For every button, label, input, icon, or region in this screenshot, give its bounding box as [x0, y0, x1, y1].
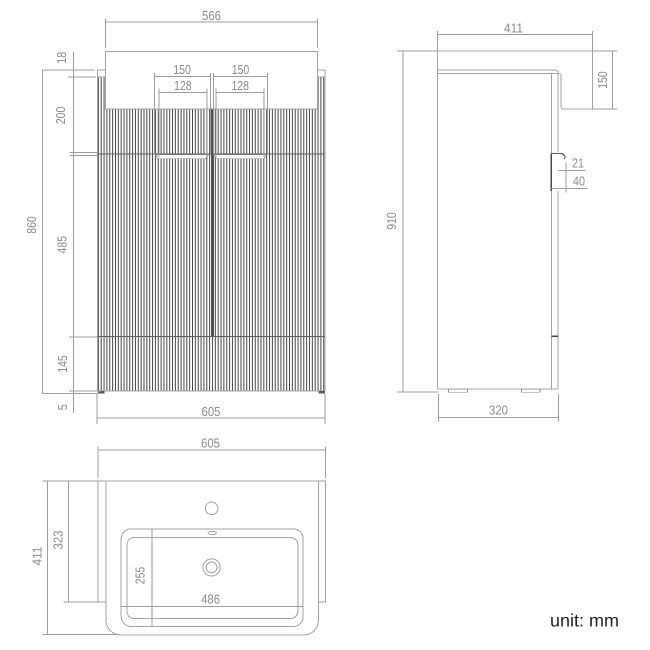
svg-text:605: 605 — [201, 436, 220, 451]
svg-text:323: 323 — [50, 531, 65, 550]
svg-text:910: 910 — [384, 212, 399, 230]
svg-text:unit: mm: unit: mm — [550, 611, 619, 631]
svg-text:485: 485 — [55, 236, 70, 254]
svg-text:18: 18 — [54, 52, 69, 64]
svg-text:150: 150 — [595, 71, 610, 89]
svg-text:255: 255 — [133, 567, 148, 585]
svg-text:150: 150 — [232, 62, 250, 77]
svg-text:411: 411 — [504, 20, 523, 35]
svg-text:150: 150 — [173, 62, 191, 77]
svg-text:566: 566 — [202, 8, 221, 23]
svg-text:128: 128 — [174, 78, 192, 93]
svg-text:860: 860 — [24, 216, 39, 234]
svg-text:145: 145 — [55, 355, 70, 373]
svg-text:200: 200 — [53, 107, 68, 125]
svg-text:605: 605 — [202, 404, 221, 419]
svg-text:320: 320 — [489, 403, 508, 418]
svg-text:128: 128 — [231, 78, 249, 93]
svg-text:21: 21 — [572, 156, 584, 171]
svg-text:411: 411 — [29, 547, 44, 566]
svg-text:5: 5 — [55, 404, 70, 410]
svg-text:40: 40 — [573, 174, 585, 189]
svg-text:486: 486 — [201, 592, 220, 607]
